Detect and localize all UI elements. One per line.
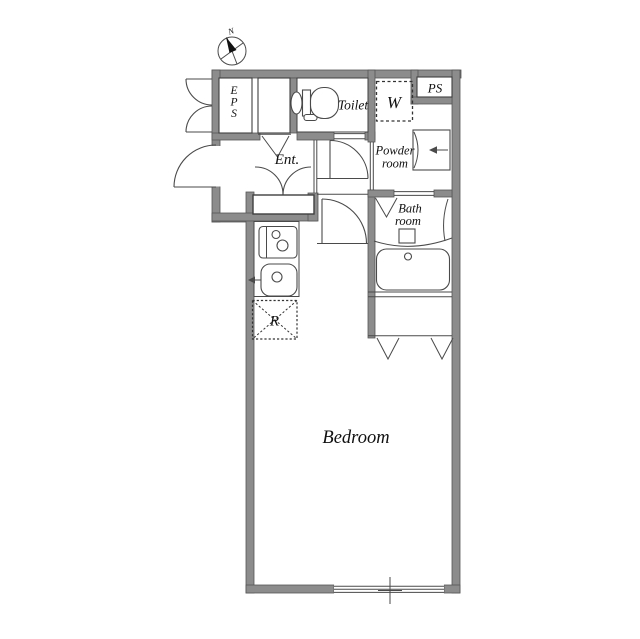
bath-faucet-box — [399, 229, 415, 243]
bathtub-drain — [405, 253, 412, 260]
toilet-fixture-icon — [291, 88, 339, 121]
wall-powder-left-upper — [368, 70, 375, 142]
toilet-cistern — [291, 92, 302, 114]
eps-label-p: P — [229, 97, 237, 109]
bedroom-label: Bedroom — [322, 428, 389, 448]
storage-cell — [258, 78, 290, 133]
bath-curve-right — [444, 199, 448, 241]
entrance-door-arc — [174, 145, 216, 187]
cabinet-door-arc-left — [255, 167, 283, 195]
toilet-label: Toilet — [338, 98, 370, 113]
entrance-opening — [211, 146, 221, 187]
wall-bottom-left — [246, 585, 334, 593]
sink-drain — [272, 272, 282, 282]
hall-door-arc — [322, 199, 367, 244]
refrigerator-label: R — [269, 314, 279, 330]
closet-fold-door-left-icon — [377, 338, 399, 359]
compass-north-needle-icon — [226, 37, 237, 53]
toilet-door-arc — [330, 141, 368, 179]
eps-door-arc-bottom — [186, 106, 212, 132]
powder-room-label-line2: room — [382, 157, 408, 171]
washing-machine-label: W — [387, 93, 403, 112]
wall-ps-bottom — [411, 97, 452, 104]
eps-label-e: E — [229, 85, 237, 97]
bath-fold-door-icon — [376, 198, 398, 217]
stove-burner-small — [272, 231, 280, 239]
toilet-tank — [303, 90, 311, 116]
wall-left-lower — [246, 192, 254, 593]
window-bottom — [334, 577, 444, 604]
closet-fold-door-right-icon — [431, 338, 453, 359]
floor-plan-page: N — [0, 0, 640, 639]
eps-door-arc-top — [186, 79, 212, 105]
wall-bath-top-right — [434, 190, 452, 197]
wall-bath-left — [368, 190, 375, 338]
entrance-label: Ent. — [274, 152, 300, 168]
wall-below-eps — [212, 133, 260, 140]
powder-room-label-line1: Powder — [375, 144, 415, 158]
compass: N — [218, 25, 246, 65]
wall-bath-top-left — [368, 190, 394, 197]
ps-label: PS — [427, 81, 443, 96]
cabinet-door-arc-right — [283, 167, 311, 195]
entrance-cabinet — [253, 195, 314, 214]
wall-bottom-right — [444, 585, 460, 593]
toilet-bowl — [311, 88, 339, 119]
floor-plan-canvas: N — [0, 0, 640, 639]
stove-icon — [259, 227, 297, 259]
compass-north-label: N — [226, 25, 237, 37]
washbasin-icon — [413, 130, 450, 170]
sink-icon — [248, 264, 297, 296]
wall-right — [452, 70, 460, 593]
stove-burner-large — [277, 240, 288, 251]
bath-room-label-line2: room — [395, 214, 421, 228]
wall-below-toilet-left — [297, 132, 334, 140]
eps-label-s: S — [231, 108, 237, 120]
bathtub — [377, 249, 450, 290]
